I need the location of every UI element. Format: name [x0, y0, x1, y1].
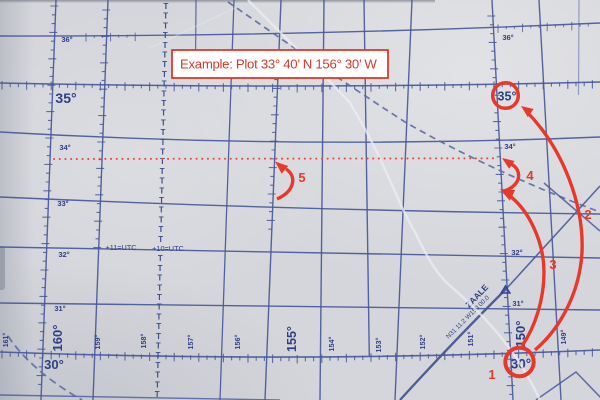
svg-text:T: T	[160, 148, 165, 157]
svg-text:T: T	[157, 312, 162, 321]
svg-text:149°: 149°	[559, 329, 568, 344]
svg-text:4: 4	[526, 168, 534, 183]
svg-text:T: T	[158, 225, 163, 234]
svg-text:T: T	[157, 293, 162, 302]
svg-text:1: 1	[488, 367, 495, 382]
svg-text:35°: 35°	[498, 89, 517, 103]
svg-text:3: 3	[549, 257, 556, 272]
svg-text:T: T	[161, 128, 166, 137]
svg-text:2: 2	[584, 207, 591, 222]
svg-text:36°: 36°	[502, 33, 513, 42]
svg-text:T: T	[162, 70, 167, 79]
svg-text:36°: 36°	[61, 35, 72, 44]
svg-text:T: T	[159, 196, 164, 205]
svg-text:154°: 154°	[327, 336, 336, 351]
svg-text:T: T	[161, 118, 166, 127]
svg-text:30°: 30°	[44, 357, 64, 372]
svg-text:T: T	[156, 332, 161, 341]
svg-text:31°: 31°	[512, 299, 523, 308]
svg-text:155°: 155°	[285, 326, 299, 352]
svg-text:T: T	[156, 351, 161, 360]
svg-text:T: T	[158, 264, 163, 273]
svg-text:T: T	[158, 254, 163, 263]
svg-text:T: T	[156, 342, 161, 351]
svg-text:151°: 151°	[466, 331, 475, 346]
svg-text:34°: 34°	[504, 142, 515, 151]
svg-text:T: T	[160, 177, 165, 186]
svg-text:T: T	[162, 80, 167, 89]
svg-text:T: T	[160, 167, 165, 176]
svg-text:158°: 158°	[139, 333, 148, 348]
svg-text:T: T	[155, 380, 160, 389]
svg-text:T: T	[156, 322, 161, 331]
svg-text:T: T	[162, 51, 167, 60]
svg-text:T: T	[155, 371, 160, 380]
svg-text:159°: 159°	[93, 334, 102, 349]
svg-text:T: T	[163, 31, 168, 40]
svg-text:31°: 31°	[54, 304, 65, 313]
svg-text:157°: 157°	[186, 334, 195, 349]
svg-text:34°: 34°	[59, 143, 70, 152]
svg-text:T: T	[159, 186, 164, 195]
svg-text:T: T	[159, 206, 164, 215]
svg-text:153°: 153°	[374, 337, 383, 352]
svg-text:156°: 156°	[233, 334, 242, 349]
svg-text:T: T	[159, 215, 164, 224]
svg-text:T: T	[161, 109, 166, 118]
svg-text:35°: 35°	[55, 90, 76, 106]
svg-text:T: T	[157, 274, 162, 283]
svg-text:T: T	[160, 138, 165, 147]
svg-text:T: T	[163, 21, 168, 30]
svg-text:T: T	[155, 390, 160, 399]
svg-text:33°: 33°	[57, 199, 68, 208]
svg-text:T: T	[157, 283, 162, 292]
svg-text:T: T	[157, 303, 162, 312]
svg-text:T: T	[162, 60, 167, 69]
svg-text:152°: 152°	[418, 334, 427, 349]
svg-text:+10=UTC: +10=UTC	[152, 244, 184, 253]
svg-text:T: T	[162, 89, 167, 98]
svg-text:T: T	[161, 99, 166, 108]
svg-text:160°: 160°	[50, 325, 65, 352]
svg-text:T: T	[163, 12, 168, 21]
svg-text:T: T	[158, 235, 163, 244]
svg-text:Example: Plot 33° 40’ N 156° 3: Example: Plot 33° 40’ N 156° 30’ W	[180, 57, 377, 72]
svg-text:T: T	[164, 2, 169, 11]
svg-text:+11=UTC: +11=UTC	[105, 243, 136, 252]
svg-text:161°: 161°	[2, 333, 10, 348]
svg-text:32°: 32°	[511, 248, 522, 257]
svg-text:150°: 150°	[513, 321, 528, 348]
svg-text:32°: 32°	[58, 250, 69, 259]
svg-text:T: T	[155, 361, 160, 370]
svg-text:5: 5	[298, 170, 305, 185]
